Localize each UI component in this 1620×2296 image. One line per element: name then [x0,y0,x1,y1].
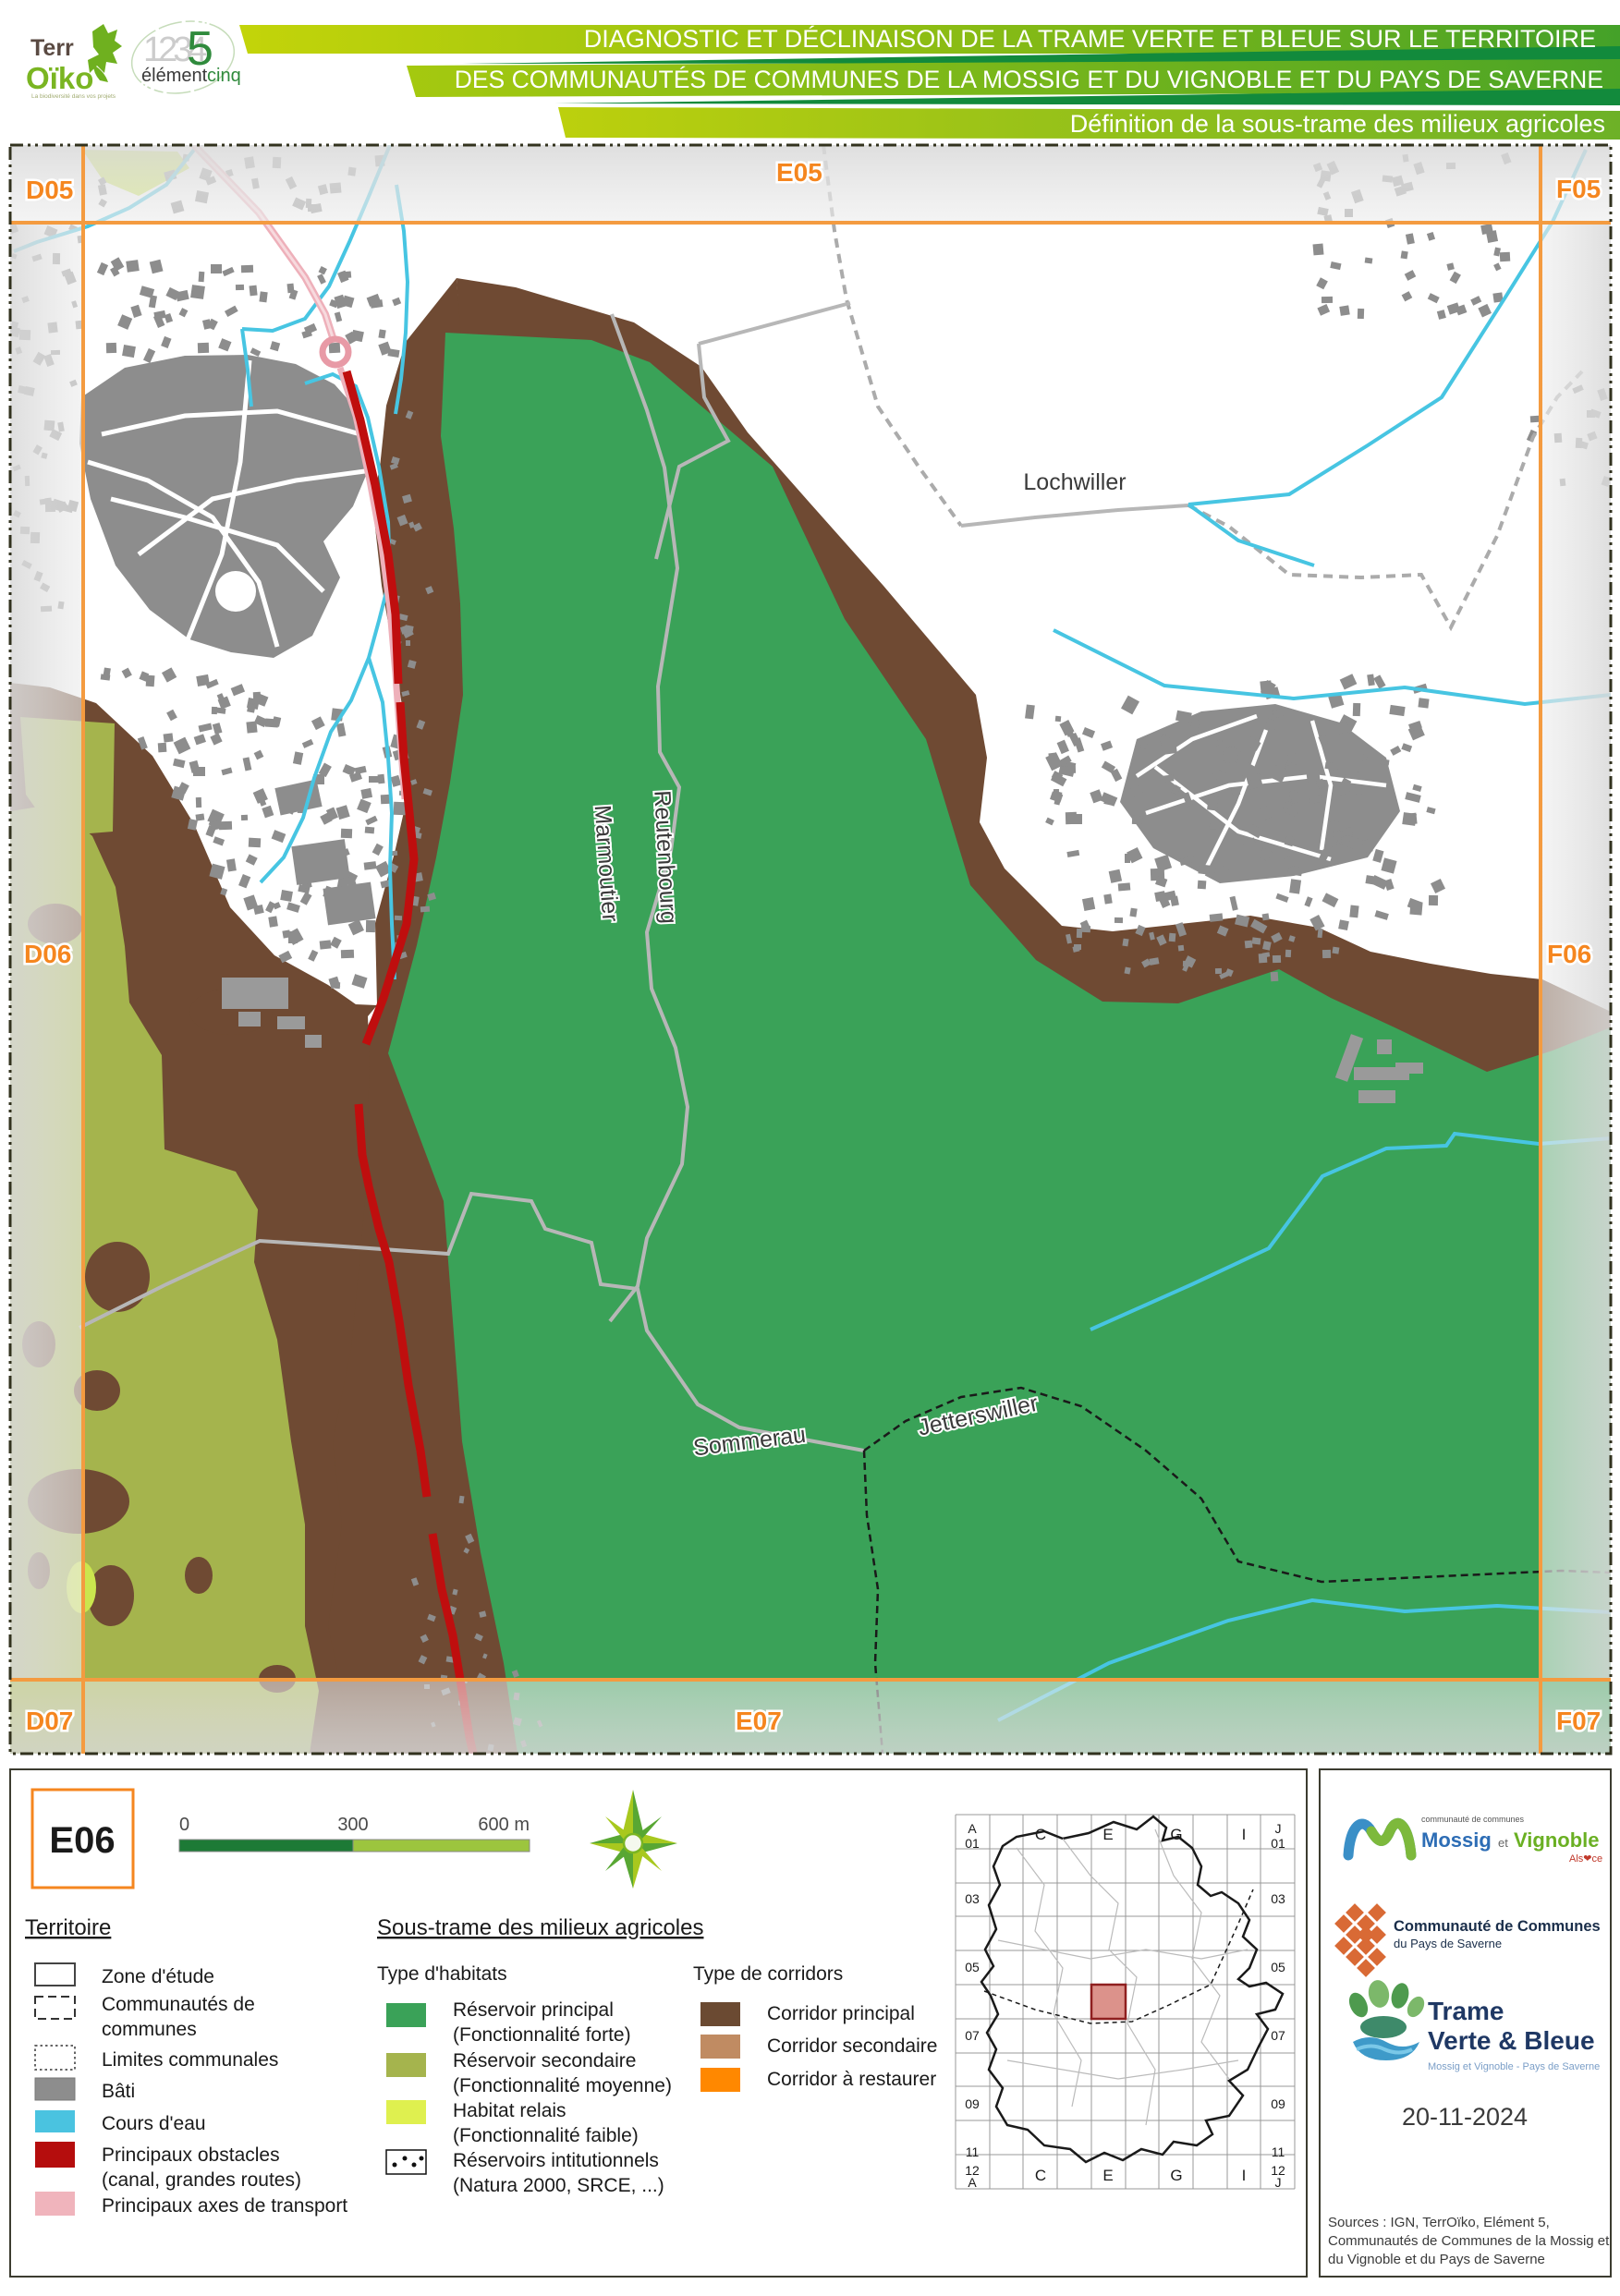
svg-text:La biodiversité dans vos proje: La biodiversité dans vos projets [31,93,116,100]
svg-text:(Fonctionnalité moyenne): (Fonctionnalité moyenne) [453,2075,672,2096]
svg-text:11: 11 [966,2144,980,2159]
svg-text:cinq: cinq [207,66,241,86]
svg-text:Lochwiller: Lochwiller [1023,469,1126,495]
svg-text:E: E [1102,1826,1113,1843]
svg-text:C: C [1035,2167,1046,2184]
svg-text:Terr: Terr [30,35,74,61]
svg-text:Corridor principal: Corridor principal [767,2003,915,2024]
svg-text:Corridor secondaire: Corridor secondaire [767,2035,937,2057]
svg-text:Type de corridors: Type de corridors [693,1963,843,1985]
svg-text:Als❤ce: Als❤ce [1569,1853,1602,1865]
svg-text:07: 07 [965,2028,980,2043]
svg-text:élément: élément [141,66,208,86]
svg-text:600 m: 600 m [478,1815,530,1835]
svg-text:Principaux axes de transport: Principaux axes de transport [102,2195,347,2217]
svg-text:05: 05 [965,1960,980,1974]
svg-text:03: 03 [1271,1891,1285,1906]
svg-text:du Pays de Saverne: du Pays de Saverne [1394,1937,1502,1950]
svg-text:et: et [1498,1836,1508,1850]
svg-text:DES COMMUNAUTÉS DE COMMUNES DE: DES COMMUNAUTÉS DE COMMUNES DE LA MOSSIG… [455,66,1603,93]
svg-text:communes: communes [102,2019,197,2040]
svg-text:E07: E07 [736,1707,782,1735]
svg-text:Communautés de Communes de la: Communautés de Communes de la Mossig et [1328,2233,1610,2249]
svg-text:C: C [1035,1826,1046,1843]
svg-text:01: 01 [1271,1836,1285,1851]
svg-text:(Fonctionnalité faible): (Fonctionnalité faible) [453,2125,639,2146]
svg-text:Réservoir secondaire: Réservoir secondaire [453,2050,636,2071]
svg-text:Communauté de Communes: Communauté de Communes [1394,1918,1601,1935]
svg-text:Définition de la sous-trame de: Définition de la sous-trame des milieux … [1070,110,1605,138]
svg-text:Type d'habitats: Type d'habitats [377,1963,507,1985]
svg-text:Cours d'eau: Cours d'eau [102,2113,206,2134]
svg-text:11: 11 [1272,2144,1285,2159]
svg-text:(canal, grandes routes): (canal, grandes routes) [102,2169,301,2191]
svg-text:300: 300 [337,1815,368,1835]
svg-text:(Natura 2000, SRCE, ...): (Natura 2000, SRCE, ...) [453,2175,664,2196]
svg-text:E06: E06 [49,1820,115,1861]
svg-text:J: J [1275,1821,1282,1836]
svg-text:F07: F07 [1556,1707,1601,1735]
svg-text:du Vignoble et du Pays de Save: du Vignoble et du Pays de Saverne [1328,2252,1545,2267]
svg-text:03: 03 [965,1891,980,1906]
svg-text:(Fonctionnalité forte): (Fonctionnalité forte) [453,2024,631,2046]
svg-text:Sources : IGN, TerrOïko, Eléme: Sources : IGN, TerrOïko, Elément 5, [1328,2215,1550,2230]
svg-text:0: 0 [179,1815,189,1835]
svg-text:Mossig et Vignoble - Pays de S: Mossig et Vignoble - Pays de Saverne [1428,2061,1600,2072]
svg-text:Verte & Bleue: Verte & Bleue [1428,2026,1595,2055]
svg-text:Oïko: Oïko [26,61,93,95]
svg-text:DIAGNOSTIC ET DÉCLINAISON DE L: DIAGNOSTIC ET DÉCLINAISON DE LA TRAME VE… [584,25,1596,53]
svg-text:J: J [1275,2175,1282,2190]
svg-text:09: 09 [965,2096,980,2111]
svg-text:Réservoir principal: Réservoir principal [453,1999,614,2021]
svg-text:Vignoble: Vignoble [1514,1828,1600,1852]
svg-text:F06: F06 [1547,940,1591,968]
svg-text:D07: D07 [26,1707,73,1735]
svg-text:G: G [1170,1826,1182,1843]
svg-text:20-11-2024: 20-11-2024 [1402,2103,1528,2131]
svg-text:F05: F05 [1556,175,1601,203]
svg-text:Territoire: Territoire [25,1915,111,1940]
svg-text:09: 09 [1271,2096,1285,2111]
svg-text:A: A [968,1821,977,1836]
svg-text:D06: D06 [24,940,71,968]
svg-text:G: G [1170,2167,1182,2184]
svg-text:Sous-trame des milieux agricol: Sous-trame des milieux agricoles [377,1915,703,1940]
svg-text:07: 07 [1271,2028,1285,2043]
svg-text:Mossig: Mossig [1421,1828,1492,1852]
svg-text:A: A [968,2175,977,2190]
svg-text:Habitat relais: Habitat relais [453,2100,566,2121]
svg-text:Réservoirs intitutionnels: Réservoirs intitutionnels [453,2150,659,2171]
svg-text:01: 01 [965,1836,980,1851]
svg-text:communauté de communes: communauté de communes [1421,1815,1525,1824]
svg-text:Corridor à restaurer: Corridor à restaurer [767,2069,936,2090]
svg-text:Trame: Trame [1428,1997,1504,2025]
svg-text:Principaux obstacles: Principaux obstacles [102,2144,280,2166]
svg-text:D05: D05 [26,176,73,204]
svg-text:I: I [1242,1826,1247,1843]
svg-text:Bâti: Bâti [102,2081,135,2102]
svg-text:E05: E05 [776,158,822,187]
svg-text:05: 05 [1271,1960,1285,1974]
svg-text:I: I [1242,2167,1247,2184]
svg-text:Zone d'étude: Zone d'étude [102,1966,214,1987]
svg-text:Communautés de: Communautés de [102,1994,255,2015]
svg-text:Limites communales: Limites communales [102,2049,278,2071]
svg-text:E: E [1102,2167,1113,2184]
